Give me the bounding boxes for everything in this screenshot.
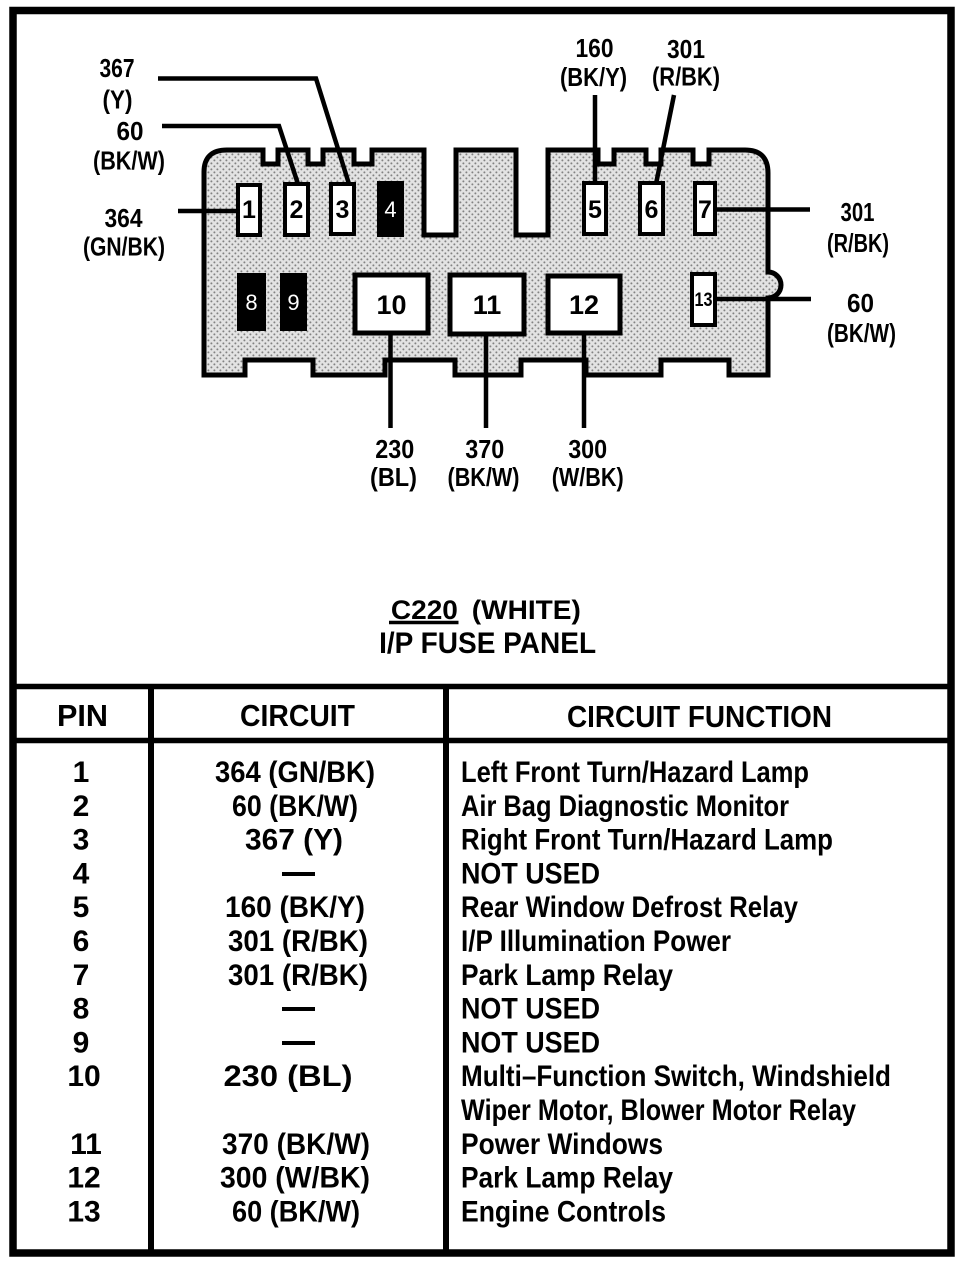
svg-text:367: 367 — [100, 53, 135, 83]
svg-text:10: 10 — [67, 1060, 100, 1093]
svg-text:(BK/W): (BK/W) — [93, 146, 165, 176]
svg-text:Rear Window Defrost Relay: Rear Window Defrost Relay — [461, 891, 798, 924]
svg-text:11: 11 — [473, 290, 502, 320]
svg-text:Power Windows: Power Windows — [461, 1128, 663, 1161]
svg-text:3: 3 — [73, 824, 90, 857]
svg-text:Left Front Turn/Hazard Lamp: Left Front Turn/Hazard Lamp — [461, 756, 809, 789]
svg-text:Park Lamp Relay: Park Lamp Relay — [461, 1162, 673, 1195]
svg-text:7: 7 — [698, 196, 712, 224]
svg-text:160 (BK/Y): 160 (BK/Y) — [225, 891, 365, 924]
svg-text:230: 230 — [375, 434, 414, 464]
svg-text:160: 160 — [576, 33, 614, 63]
svg-text:2: 2 — [290, 196, 304, 224]
svg-text:(R/BK): (R/BK) — [652, 62, 720, 92]
svg-text:300 (W/BK): 300 (W/BK) — [220, 1162, 370, 1195]
svg-text:301 (R/BK): 301 (R/BK) — [228, 925, 368, 958]
svg-text:12: 12 — [569, 290, 599, 320]
svg-text:NOT USED: NOT USED — [461, 993, 600, 1026]
svg-text:60 (BK/W): 60 (BK/W) — [232, 1195, 360, 1228]
svg-text:Air Bag Diagnostic Monitor: Air Bag Diagnostic Monitor — [461, 790, 789, 823]
svg-text:1: 1 — [242, 196, 256, 224]
svg-text:PIN: PIN — [57, 698, 108, 733]
svg-text:8: 8 — [73, 993, 90, 1026]
svg-text:370 (BK/W): 370 (BK/W) — [222, 1128, 370, 1161]
svg-text:301: 301 — [667, 34, 705, 64]
svg-text:10: 10 — [376, 290, 406, 320]
svg-text:NOT USED: NOT USED — [461, 1026, 600, 1059]
svg-text:364: 364 — [105, 203, 143, 233]
svg-text:9: 9 — [73, 1026, 90, 1059]
svg-text:60: 60 — [847, 288, 874, 318]
svg-text:301 (R/BK): 301 (R/BK) — [228, 959, 368, 992]
svg-text:6: 6 — [645, 196, 659, 224]
svg-text:(BL): (BL) — [370, 462, 417, 492]
svg-text:2: 2 — [73, 790, 90, 823]
svg-text:Right Front Turn/Hazard Lamp: Right Front Turn/Hazard Lamp — [461, 824, 833, 857]
svg-text:7: 7 — [73, 959, 90, 992]
svg-text:367 (Y): 367 (Y) — [245, 824, 343, 857]
svg-text:Park Lamp Relay: Park Lamp Relay — [461, 959, 673, 992]
svg-text:60 (BK/W): 60 (BK/W) — [232, 790, 358, 823]
svg-text:4: 4 — [384, 197, 396, 222]
svg-text:C220: C220 — [391, 595, 458, 625]
svg-text:3: 3 — [336, 196, 350, 224]
svg-text:364 (GN/BK): 364 (GN/BK) — [215, 756, 375, 789]
svg-text:I/P Illumination Power: I/P Illumination Power — [461, 925, 731, 958]
svg-text:60: 60 — [117, 116, 144, 146]
svg-text:300: 300 — [568, 434, 607, 464]
svg-text:230 (BL): 230 (BL) — [224, 1060, 353, 1093]
svg-text:1: 1 — [73, 756, 90, 789]
svg-text:(R/BK): (R/BK) — [827, 228, 889, 258]
svg-text:9: 9 — [287, 290, 299, 315]
svg-text:(BK/Y): (BK/Y) — [560, 62, 627, 92]
svg-text:301: 301 — [841, 197, 875, 227]
svg-text:13: 13 — [695, 290, 713, 311]
svg-text:Wiper Motor, Blower Motor Rela: Wiper Motor, Blower Motor Relay — [461, 1094, 856, 1127]
svg-text:11: 11 — [70, 1128, 102, 1161]
svg-text:CIRCUIT FUNCTION: CIRCUIT FUNCTION — [567, 699, 832, 734]
svg-text:(GN/BK): (GN/BK) — [83, 232, 165, 262]
svg-text:Multi–Function Switch, Windshi: Multi–Function Switch, Windshield — [461, 1060, 891, 1093]
svg-text:Engine Controls: Engine Controls — [461, 1195, 666, 1228]
svg-text:(WHITE): (WHITE) — [472, 595, 581, 625]
svg-text:(BK/W): (BK/W) — [448, 462, 520, 492]
svg-text:(BK/W): (BK/W) — [827, 318, 896, 348]
svg-text:5: 5 — [588, 196, 602, 224]
svg-text:12: 12 — [67, 1162, 100, 1195]
svg-text:5: 5 — [73, 891, 90, 924]
svg-text:6: 6 — [73, 925, 90, 958]
svg-text:4: 4 — [73, 857, 90, 890]
svg-text:I/P FUSE PANEL: I/P FUSE PANEL — [379, 627, 596, 660]
svg-text:CIRCUIT: CIRCUIT — [240, 698, 355, 733]
svg-text:370: 370 — [465, 434, 504, 464]
svg-text:8: 8 — [245, 290, 257, 315]
svg-text:(Y): (Y) — [103, 85, 133, 115]
svg-text:(W/BK): (W/BK) — [552, 462, 624, 492]
svg-text:NOT USED: NOT USED — [461, 857, 600, 890]
svg-text:13: 13 — [67, 1195, 100, 1228]
